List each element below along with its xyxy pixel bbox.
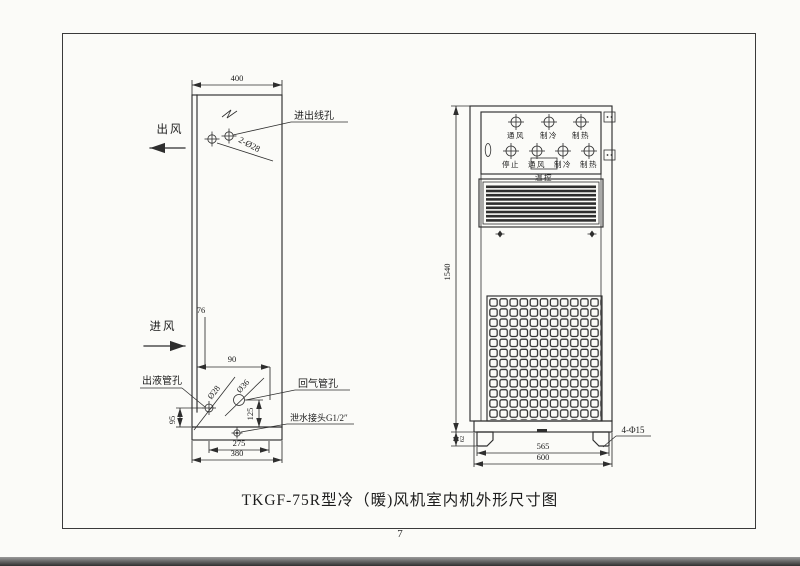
svg-text:125: 125 (245, 408, 255, 421)
pipe-hole-lines (194, 377, 264, 430)
button-label-heat: 制热 (580, 159, 598, 169)
drain-hole (232, 428, 243, 439)
svg-text:380: 380 (231, 448, 244, 458)
front-view: 通风 制冷 制热 停止 通风 制冷 制热 温控 (442, 106, 651, 467)
wire-hole-label: 进出线孔 (294, 109, 334, 122)
indicator-lights (508, 114, 589, 130)
wire-holes (205, 122, 349, 161)
door-hinges (604, 112, 615, 160)
lock-keyhole (485, 144, 491, 157)
svg-text:1540: 1540 (442, 264, 452, 281)
drain-label: 泄水接头G1/2″ (290, 412, 348, 423)
wire-hole-spec: 2-Ø28 (237, 135, 262, 155)
indicator-label-cool: 制冷 (540, 130, 558, 140)
svg-text:62: 62 (459, 436, 466, 443)
svg-text:275: 275 (233, 438, 246, 448)
indicator-label-fan: 通风 (507, 130, 525, 140)
perforated-grill (487, 296, 602, 421)
dim-depth-label: 400 (231, 73, 244, 83)
svg-text:565: 565 (537, 441, 550, 451)
scan-edge-shadow (0, 557, 800, 566)
liquid-hole-label: 出液管孔 (142, 374, 182, 387)
dim-1540: 1540 (442, 106, 474, 432)
svg-text:90: 90 (228, 354, 237, 364)
svg-text:95: 95 (167, 416, 177, 425)
break-mark (222, 110, 237, 118)
gas-pipe-hole (234, 395, 245, 406)
air-in-label: 进风 (150, 320, 177, 333)
scanned-drawing-page: 400 进出线孔 2-Ø28 出风 进风 76 (0, 0, 800, 566)
liquid-hole-spec: Ø28 (205, 383, 222, 401)
dim-400: 400 (192, 73, 282, 95)
air-out-label: 出风 (157, 122, 184, 136)
page-number: 7 (0, 528, 800, 540)
dim-62: 62 (451, 432, 477, 446)
gas-hole-label: 回气管孔 (298, 377, 338, 390)
dim-125: 125 (245, 400, 263, 427)
drawing-title: TKGF-75R型冷（暖)风机室内机外形尺寸图 (100, 488, 700, 510)
svg-text:600: 600 (537, 452, 550, 462)
indicator-label-heat: 制热 (572, 130, 590, 140)
side-view: 400 进出线孔 2-Ø28 出风 进风 76 (140, 73, 354, 463)
louver-grille (479, 179, 603, 227)
panel-buttons (503, 143, 597, 159)
button-label-stop: 停止 (502, 159, 520, 169)
gas-hole-spec: Ø36 (234, 377, 251, 395)
left-foot (477, 432, 493, 446)
panel-screws (496, 231, 597, 238)
liquid-pipe-hole (202, 401, 216, 415)
dimension-drawing: 400 进出线孔 2-Ø28 出风 进风 76 (0, 0, 800, 566)
thermostat-label: 温控 (535, 172, 553, 182)
dim-76-label: 76 (197, 305, 206, 315)
foot-hole-spec: 4-Φ15 (621, 425, 645, 435)
